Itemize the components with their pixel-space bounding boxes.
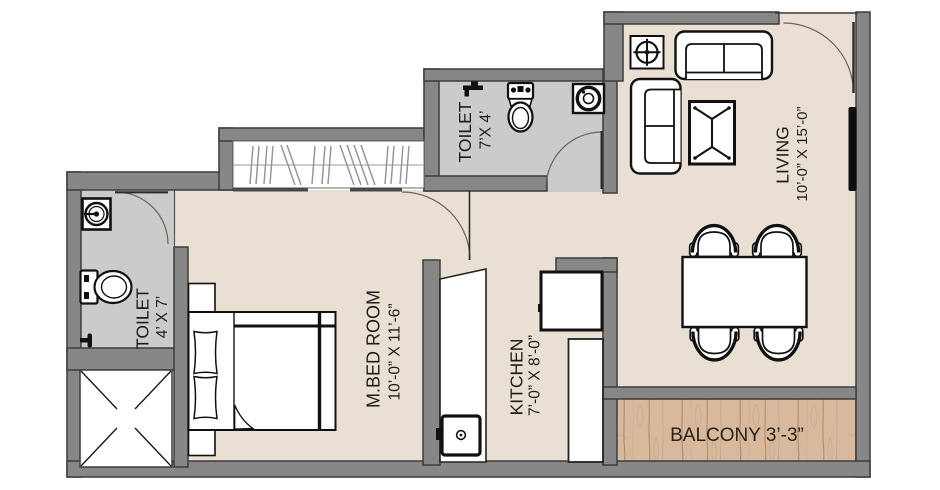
svg-text:BALCONY 3’-3”: BALCONY 3’-3” bbox=[670, 425, 804, 446]
svg-text:TOILET: TOILET bbox=[455, 101, 475, 162]
svg-text:7’-0” X 8’-0”: 7’-0” X 8’-0” bbox=[527, 335, 544, 416]
svg-text:LIVING: LIVING bbox=[773, 126, 793, 183]
svg-text:M.BED ROOM: M.BED ROOM bbox=[364, 290, 384, 408]
svg-text:10’-0” X 11’-6”: 10’-0” X 11’-6” bbox=[387, 303, 404, 400]
svg-text:4’ X 7’: 4’ X 7’ bbox=[154, 296, 171, 339]
svg-text:TOILET: TOILET bbox=[133, 288, 153, 349]
svg-text:10’-0” X 15’-0”: 10’-0” X 15’-0” bbox=[794, 106, 811, 201]
svg-text:7’X 4’: 7’X 4’ bbox=[478, 111, 495, 150]
svg-text:KITCHEN: KITCHEN bbox=[507, 339, 527, 416]
